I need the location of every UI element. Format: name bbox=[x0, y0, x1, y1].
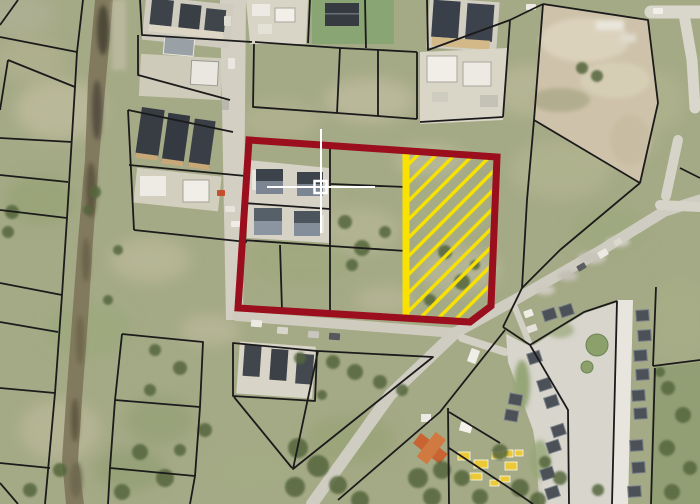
tree bbox=[338, 215, 352, 229]
vehicle bbox=[329, 333, 340, 341]
tree bbox=[661, 381, 675, 395]
tree bbox=[285, 477, 305, 497]
tree bbox=[294, 352, 306, 364]
aerial-basemap bbox=[0, 0, 700, 504]
tree bbox=[576, 62, 588, 74]
tree bbox=[174, 444, 186, 456]
vehicle bbox=[228, 58, 235, 69]
vehicle bbox=[231, 221, 241, 227]
building-under-construction bbox=[427, 56, 457, 82]
aerial-map-svg bbox=[0, 0, 700, 504]
tree bbox=[408, 468, 428, 488]
tree bbox=[23, 483, 37, 497]
tree bbox=[592, 484, 604, 496]
tree bbox=[2, 226, 14, 238]
tree bbox=[113, 245, 123, 255]
estate-house-roof bbox=[632, 462, 646, 474]
house-roof bbox=[243, 345, 262, 377]
tree bbox=[655, 367, 665, 377]
estate-house-roof bbox=[630, 440, 644, 452]
east-road-branch bbox=[660, 205, 700, 207]
building-under-construction bbox=[140, 176, 166, 196]
tree bbox=[492, 444, 508, 460]
estate-house-roof bbox=[628, 486, 642, 498]
tree bbox=[373, 375, 387, 389]
vehicle bbox=[653, 8, 663, 14]
map-canvas[interactable] bbox=[0, 0, 700, 504]
green-island bbox=[581, 361, 593, 373]
materials bbox=[432, 92, 448, 102]
tree bbox=[664, 484, 680, 500]
construction-materials bbox=[500, 476, 510, 482]
vehicle bbox=[277, 327, 288, 335]
estate-house-roof bbox=[636, 310, 650, 322]
estate-house-roof bbox=[632, 390, 646, 402]
estate-house-roof bbox=[636, 369, 650, 381]
tree bbox=[144, 384, 156, 396]
building-under-construction bbox=[463, 62, 491, 86]
tree bbox=[553, 471, 567, 485]
materials bbox=[480, 95, 498, 107]
estate-house-roof bbox=[634, 408, 648, 420]
vehicle bbox=[251, 320, 262, 328]
tree bbox=[454, 470, 470, 486]
building-under-construction bbox=[183, 180, 209, 202]
vehicle bbox=[308, 331, 319, 339]
building-under-construction bbox=[258, 24, 272, 34]
gray-roof-building bbox=[163, 37, 194, 57]
tree bbox=[591, 70, 603, 82]
building-under-construction bbox=[275, 8, 295, 22]
tree bbox=[347, 364, 363, 380]
house-roof bbox=[178, 3, 202, 31]
tree bbox=[346, 259, 358, 271]
tree bbox=[83, 205, 93, 215]
house-roof bbox=[269, 349, 288, 381]
tree bbox=[683, 461, 697, 475]
estate-house-roof bbox=[508, 393, 523, 406]
building-under-construction bbox=[190, 60, 218, 85]
house-roof bbox=[431, 0, 461, 39]
vehicle bbox=[224, 16, 231, 26]
construction-materials bbox=[470, 473, 482, 480]
east-green-strip bbox=[650, 362, 700, 504]
tree bbox=[379, 226, 391, 238]
tree bbox=[132, 444, 148, 460]
tree bbox=[317, 390, 327, 400]
hatched-subarea[interactable] bbox=[406, 152, 493, 320]
estate-house-roof bbox=[634, 350, 648, 362]
tree bbox=[103, 295, 113, 305]
hatch-fill bbox=[409, 153, 493, 320]
tree bbox=[198, 423, 212, 437]
grass-patch bbox=[210, 448, 290, 492]
vehicle bbox=[217, 190, 225, 196]
grass-patch bbox=[110, 238, 190, 282]
house-roof bbox=[149, 0, 174, 27]
vehicle bbox=[222, 100, 229, 110]
tree bbox=[307, 455, 329, 477]
estate-house-roof bbox=[638, 330, 652, 342]
tree bbox=[173, 361, 187, 375]
tree bbox=[329, 476, 347, 494]
estate-house-roof bbox=[504, 409, 519, 422]
tree bbox=[539, 456, 551, 468]
grass-patch bbox=[20, 400, 100, 460]
tree bbox=[675, 407, 691, 423]
building-under-construction bbox=[252, 4, 270, 16]
house-roof bbox=[465, 3, 495, 42]
vehicle bbox=[225, 206, 235, 212]
green-island bbox=[586, 334, 608, 356]
construction-materials bbox=[515, 450, 523, 456]
tree bbox=[53, 463, 67, 477]
grass-patch bbox=[240, 100, 320, 140]
tree bbox=[149, 344, 161, 356]
tree bbox=[114, 484, 130, 500]
tree bbox=[326, 355, 340, 369]
roof-ridge bbox=[325, 13, 359, 15]
tree bbox=[659, 440, 675, 456]
construction-materials bbox=[505, 462, 517, 470]
tree bbox=[89, 186, 101, 198]
